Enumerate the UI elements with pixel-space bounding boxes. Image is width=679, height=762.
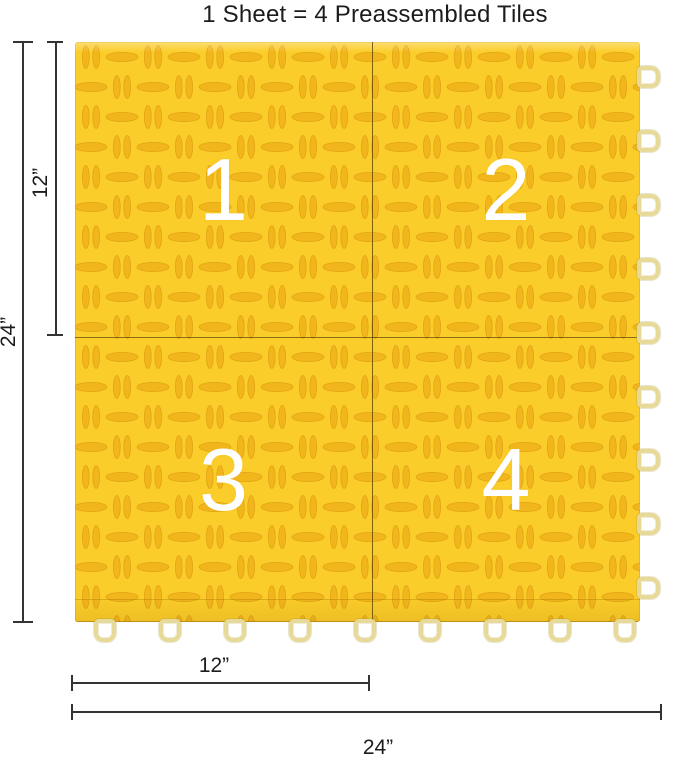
connector-loop xyxy=(549,619,571,642)
dim-tick xyxy=(368,675,370,691)
dim-tick xyxy=(47,334,63,336)
diagram-title: 1 Sheet = 4 Preassembled Tiles xyxy=(90,1,660,29)
dim-line xyxy=(22,42,24,623)
dim-line xyxy=(72,711,661,713)
connector-loop xyxy=(637,513,660,535)
tile-1: 1 xyxy=(75,42,372,337)
connector-loop xyxy=(159,619,181,642)
tile-2: 2 xyxy=(372,42,640,337)
connector-loop xyxy=(614,619,636,642)
connector-loop xyxy=(484,619,506,642)
product-diagram: 1 Sheet = 4 Preassembled Tiles 1 2 3 4 2… xyxy=(0,0,679,762)
dim-label-24in-left: 24” xyxy=(0,317,21,347)
tile-3-number: 3 xyxy=(199,436,248,524)
tile-4-number: 4 xyxy=(482,436,531,524)
dim-label-24in-bottom: 24” xyxy=(363,736,393,760)
connector-loop xyxy=(354,619,376,642)
connector-loop xyxy=(637,194,660,216)
dim-label-12in-left: 12” xyxy=(29,168,53,198)
dim-tick xyxy=(47,41,63,43)
tile-4: 4 xyxy=(372,337,640,622)
connector-loop xyxy=(637,449,660,471)
connector-loop xyxy=(637,577,660,599)
dim-line xyxy=(55,42,57,336)
connector-loop xyxy=(637,322,660,344)
connector-loop xyxy=(224,619,246,642)
connector-loop xyxy=(289,619,311,642)
dim-label-12in-bottom: 12” xyxy=(199,654,229,678)
dim-tick xyxy=(71,675,73,691)
dim-tick xyxy=(660,704,662,720)
dim-line xyxy=(72,682,369,684)
tile-2-number: 2 xyxy=(482,146,531,234)
dim-tick xyxy=(13,621,33,623)
tile-1-number: 1 xyxy=(199,146,248,234)
dim-tick xyxy=(71,704,73,720)
connector-loop xyxy=(419,619,441,642)
connector-loop xyxy=(637,386,660,408)
tile-sheet: 1 2 3 4 xyxy=(75,42,640,622)
connector-loop xyxy=(94,619,116,642)
connector-loop xyxy=(637,66,660,88)
tile-3: 3 xyxy=(75,337,372,622)
connector-loop xyxy=(637,258,660,280)
dim-tick xyxy=(13,41,33,43)
connector-loop xyxy=(637,130,660,152)
